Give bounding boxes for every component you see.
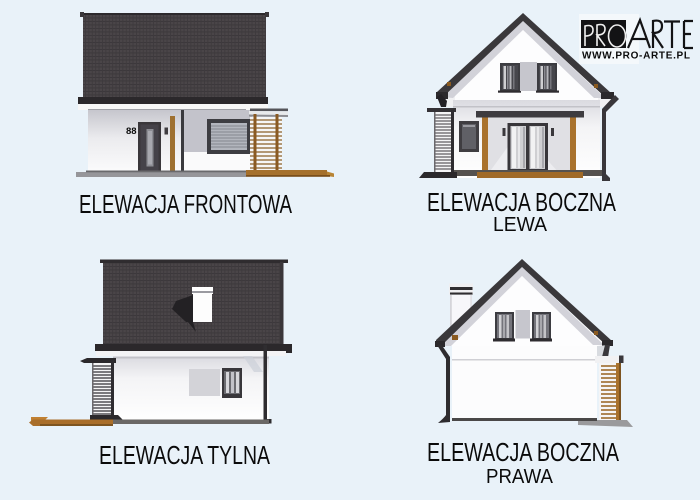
svg-text:ELEWACJA FRONTOWA: ELEWACJA FRONTOWA bbox=[79, 189, 292, 219]
svg-text:ELEWACJA TYLNA: ELEWACJA TYLNA bbox=[99, 440, 270, 470]
svg-text:LEWA: LEWA bbox=[493, 214, 548, 236]
svg-text:ELEWACJA BOCZNA: ELEWACJA BOCZNA bbox=[427, 437, 619, 467]
svg-text:WWW.PRO-ARTE.PL: WWW.PRO-ARTE.PL bbox=[582, 51, 690, 62]
svg-text:ELEWACJA BOCZNA: ELEWACJA BOCZNA bbox=[427, 187, 616, 217]
svg-text:PRAWA: PRAWA bbox=[486, 466, 554, 488]
svg-text:88: 88 bbox=[126, 126, 137, 137]
